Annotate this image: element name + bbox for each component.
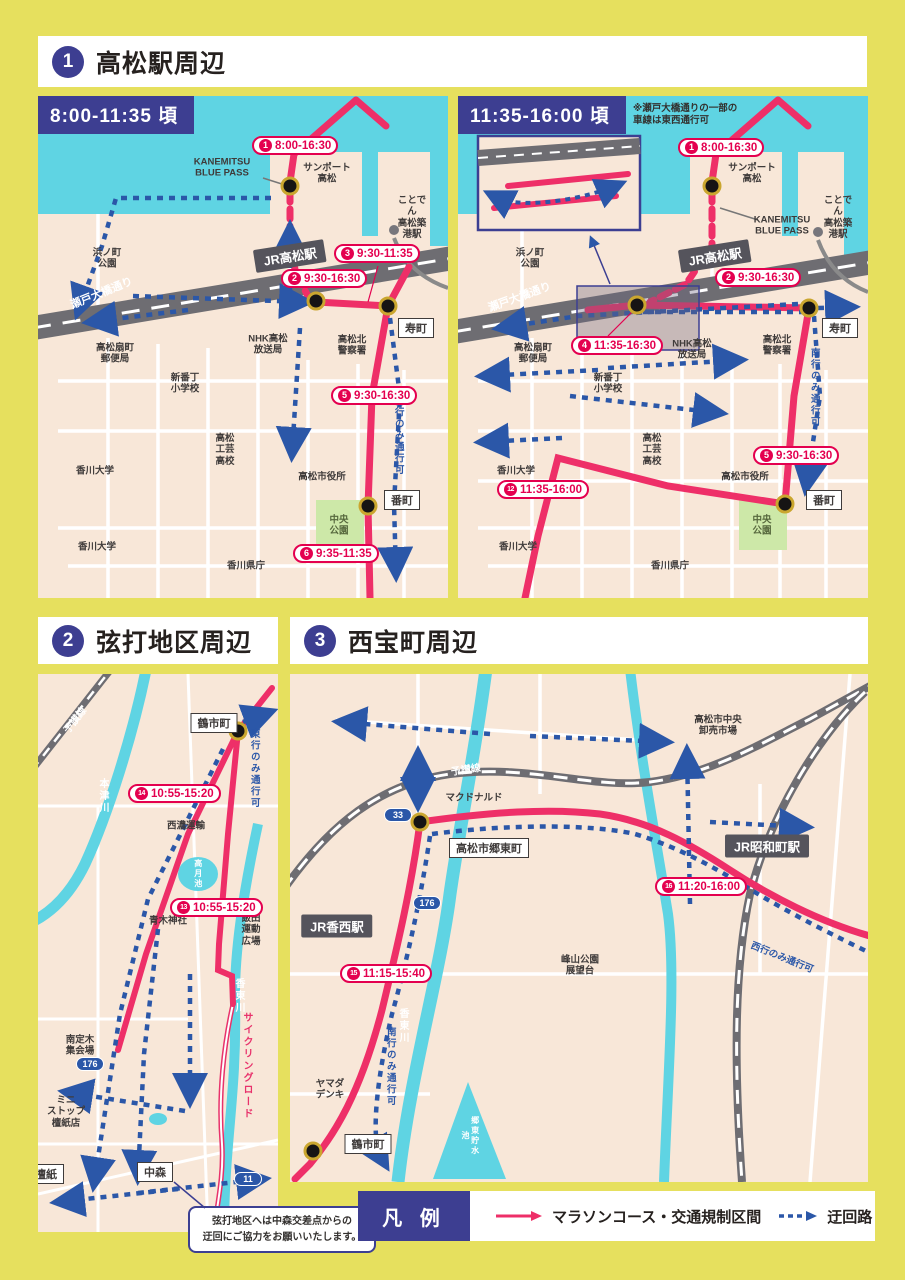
map-label: NHK高松 放送局 (248, 334, 288, 357)
box-label: 寿町 (822, 318, 858, 338)
map-label: 青木神社 (149, 915, 187, 926)
detour-request-note: 弦打地区へは中森交差点からの 迂回にご協力をお願いいたします。 (188, 1206, 376, 1253)
map-panel-station-morning: 8:00-11:35 頃 18:00-16:3029:30-16:3039:30… (38, 96, 448, 598)
map-label: ヤマダ デンキ (316, 1079, 345, 1102)
map-label: 郷東貯水池 (460, 1113, 479, 1159)
map-label: 浜ノ町 公園 (93, 248, 122, 271)
map-label: 高松 工芸 高校 (642, 433, 661, 467)
detour-arrow-icon (779, 1210, 817, 1222)
map-label: 高松市中央 卸売市場 (694, 715, 742, 738)
time-label: 1511:15-15:40 (340, 964, 432, 983)
map-label: 南定木 集会場 (66, 1035, 95, 1058)
time-label: 59:30-16:30 (753, 446, 839, 465)
map-label: 予讃線 (62, 705, 90, 736)
time-label: 18:00-16:30 (252, 136, 338, 155)
map1b-labels: 18:00-16:3029:30-16:30411:35-16:3059:30-… (458, 96, 868, 598)
map-label: NHK高松 放送局 (672, 339, 712, 362)
time-label: 69:35-11:35 (293, 544, 379, 563)
map-panel-station-afternoon: 11:35-16:00 頃 ※瀬戸大橋通りの一部の 車線は東西通行可 18:00… (458, 96, 868, 598)
section-header-1: 1 高松駅周辺 (38, 36, 867, 87)
map-label: 予讃線 (450, 763, 481, 779)
map-label: 峰山公園 展望台 (561, 955, 599, 978)
box-label: 鶴市町 (191, 713, 238, 733)
legend-title: 凡 例 (358, 1191, 470, 1241)
map-label: 飯田運動 広場 (238, 913, 265, 947)
map-label: 本津川 (96, 778, 108, 814)
box-label: 檀紙 (38, 1164, 64, 1184)
map-label: 西濃運輸 (167, 820, 205, 831)
map-panel-tsuruuchi: 1410:55-15:201310:55-15:20予讃線本津川東行のみ通行可西… (38, 674, 278, 1232)
map-label: KANEMITSU BLUE PASS (754, 215, 810, 238)
box-label: 高松市郷東町 (449, 838, 529, 858)
map-label: 香川大学 (78, 541, 116, 552)
time-label: 1310:55-15:20 (170, 898, 263, 917)
map-label: 東行のみ通行可 (248, 729, 259, 810)
map-label: 高松北 警察署 (338, 335, 367, 358)
box-label: 鶴市町 (345, 1134, 392, 1154)
map3-labels: 1611:20-16:001511:15-15:40高松市中央 卸売市場予讃線マ… (290, 674, 868, 1182)
map-label: 高松市役所 (721, 471, 769, 482)
map-label: 香川県庁 (651, 560, 689, 571)
time-range-badge: 8:00-11:35 頃 (38, 96, 194, 134)
map-label: 香川大学 (499, 541, 537, 552)
course-arrow-icon (496, 1210, 542, 1222)
map-label: サンポート 高松 (303, 163, 351, 186)
map-label: 瀬戸大橋通り (69, 276, 135, 313)
map-label: 南行のみ通行可 (384, 1027, 395, 1108)
map-label: 香川大学 (76, 465, 114, 476)
section-title: 弦打地区周辺 (96, 623, 252, 659)
legend-detour-label: 迂回路 (827, 1206, 872, 1227)
route-shield: 11 (234, 1172, 262, 1186)
time-range-badge: 11:35-16:00 頃 (458, 96, 626, 134)
map-label: 香川大学 (497, 465, 535, 476)
section-title: 西宝町周辺 (348, 623, 478, 659)
time-label: 29:30-16:30 (281, 269, 367, 288)
map-label: ことでん 高松築港駅 (394, 195, 430, 241)
note-pointer (160, 1178, 210, 1210)
section-title: 高松駅周辺 (96, 44, 226, 80)
box-label: 番町 (806, 490, 842, 510)
section-header-2: 2 弦打地区周辺 (38, 617, 278, 664)
time-label: 411:35-16:30 (571, 336, 663, 355)
time-label: 39:30-11:35 (334, 244, 420, 263)
map-label: 高松扇町 郵便局 (514, 343, 552, 366)
map-label: 瀬戸大橋通り (487, 281, 554, 316)
map-label: サンポート 高松 (728, 163, 776, 186)
time-label: 1410:55-15:20 (128, 784, 221, 803)
station-label: JR高松駅 (253, 239, 327, 273)
section-number-badge: 3 (304, 625, 336, 657)
route-shield: 176 (76, 1057, 104, 1071)
map-label: 高松北 警察署 (763, 335, 792, 358)
time-label: 59:30-16:30 (331, 386, 417, 405)
map-label: サイクリングロード (240, 1012, 252, 1120)
map-label: マクドナルド (445, 792, 502, 803)
map-label: 中央 公園 (752, 515, 771, 538)
traffic-regulation-flyer: 1 高松駅周辺 (0, 0, 905, 1280)
time-label: 1611:20-16:00 (655, 877, 747, 896)
map-label: ことでん 高松築港駅 (823, 195, 853, 241)
map-panel-nishitakara: 1611:20-16:001511:15-15:40高松市中央 卸売市場予讃線マ… (290, 674, 868, 1182)
map2-labels: 1410:55-15:201310:55-15:20予讃線本津川東行のみ通行可西… (38, 674, 278, 1232)
time-label: 18:00-16:30 (678, 138, 764, 157)
map-label: 高月池 (193, 859, 203, 889)
time-label: 1211:35-16:00 (497, 480, 589, 499)
map-label: 西行のみ通行可 (749, 940, 815, 975)
map1a-labels: 18:00-16:3029:30-16:3039:30-11:3559:30-1… (38, 96, 448, 598)
station-label: JR香西駅 (301, 915, 372, 938)
route-shield: 33 (384, 808, 412, 822)
section-header-3: 3 西宝町周辺 (290, 617, 868, 664)
map-label: 浜ノ町 公園 (516, 248, 545, 271)
station-label: JR昭和町駅 (725, 835, 809, 858)
map-label: 香東川 (396, 1008, 408, 1044)
map-label: 高松扇町 郵便局 (96, 343, 134, 366)
box-label: 番町 (384, 490, 420, 510)
section-number-badge: 2 (52, 625, 84, 657)
section-number-badge: 1 (52, 46, 84, 78)
route-shield: 176 (413, 896, 441, 910)
map-label: 新番丁 小学校 (171, 373, 200, 396)
legend-body: マラソンコース・交通規制区間 迂回路 (470, 1191, 875, 1241)
box-label: 寿町 (398, 318, 434, 338)
map-label: 高松市役所 (298, 471, 346, 482)
legend-course-label: マラソンコース・交通規制区間 (552, 1206, 761, 1227)
map-label: 中央 公園 (329, 515, 348, 538)
map-label: 南行のみ通行可 (392, 396, 403, 477)
map-label: 高松 工芸 高校 (215, 433, 234, 467)
map-label: ミニ ストップ 檀紙店 (47, 1095, 85, 1129)
legend: 凡 例 マラソンコース・交通規制区間 迂回路 (358, 1191, 875, 1241)
map-label: 香東川 (232, 978, 244, 1014)
lane-note: ※瀬戸大橋通りの一部の 車線は東西通行可 (633, 103, 737, 128)
map-label: 新番丁 小学校 (594, 373, 623, 396)
map-label: 香川県庁 (227, 560, 265, 571)
map-label: KANEMITSU BLUE PASS (194, 157, 250, 180)
time-label: 29:30-16:30 (715, 268, 801, 287)
map-label: 南行のみ通行可 (808, 348, 819, 429)
